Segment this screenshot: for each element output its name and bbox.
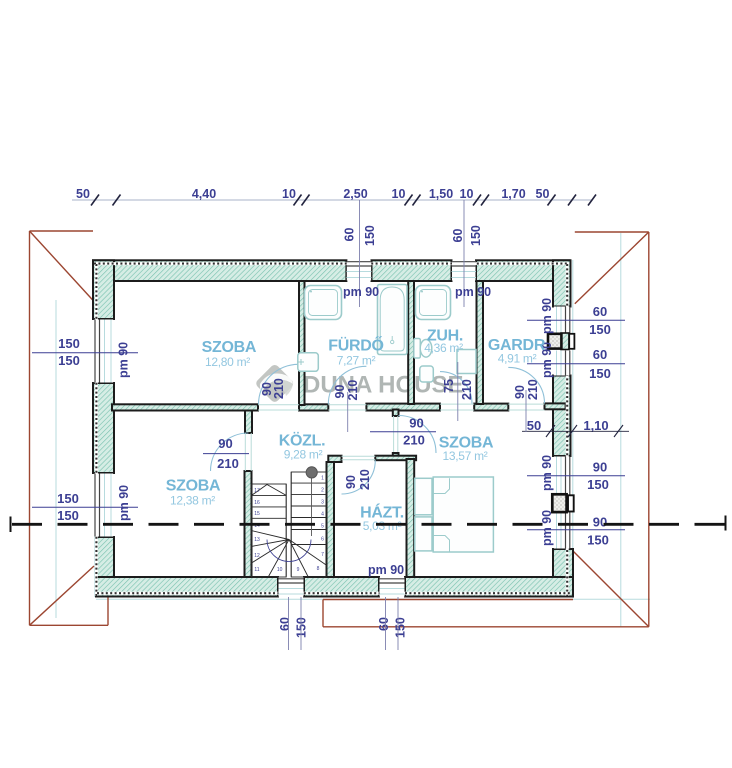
svg-text:150: 150 — [469, 225, 483, 246]
svg-text:pm 90: pm 90 — [540, 455, 554, 491]
svg-text:210: 210 — [358, 469, 372, 490]
svg-text:4,40: 4,40 — [192, 187, 216, 201]
svg-text:9,28 m²: 9,28 m² — [284, 448, 323, 462]
svg-text:SZOBA: SZOBA — [202, 339, 257, 356]
svg-text:150: 150 — [587, 477, 609, 492]
svg-text:10: 10 — [282, 187, 296, 201]
svg-text:210: 210 — [403, 433, 425, 448]
svg-text:1,70: 1,70 — [501, 187, 525, 201]
svg-text:1,10: 1,10 — [583, 418, 608, 433]
svg-text:SZOBA: SZOBA — [166, 478, 221, 495]
svg-text:10: 10 — [277, 567, 283, 573]
svg-text:12,80 m²: 12,80 m² — [205, 355, 250, 369]
svg-text:15: 15 — [254, 511, 260, 517]
svg-text:10: 10 — [392, 187, 406, 201]
svg-text:16: 16 — [254, 500, 260, 506]
svg-text:150: 150 — [58, 336, 80, 351]
svg-text:90: 90 — [344, 475, 358, 489]
svg-text:1,50: 1,50 — [429, 187, 453, 201]
svg-text:60: 60 — [451, 229, 465, 243]
svg-text:60: 60 — [593, 347, 607, 362]
svg-text:7,27 m²: 7,27 m² — [337, 354, 376, 368]
svg-text:150: 150 — [58, 353, 80, 368]
svg-text:60: 60 — [343, 228, 357, 242]
svg-text:150: 150 — [57, 508, 79, 523]
svg-text:60: 60 — [593, 304, 607, 319]
svg-text:150: 150 — [394, 617, 408, 638]
svg-text:pm 90: pm 90 — [117, 342, 131, 378]
svg-text:50: 50 — [76, 187, 90, 201]
svg-text:150: 150 — [589, 366, 611, 381]
svg-text:150: 150 — [587, 533, 609, 548]
svg-text:90: 90 — [593, 460, 607, 475]
svg-text:6: 6 — [321, 537, 324, 543]
svg-text:150: 150 — [589, 322, 611, 337]
svg-text:2,50: 2,50 — [343, 187, 367, 201]
svg-text:1: 1 — [321, 476, 324, 482]
svg-text:3: 3 — [321, 500, 324, 506]
svg-text:50: 50 — [527, 418, 541, 433]
svg-text:9: 9 — [297, 567, 300, 573]
svg-text:50: 50 — [536, 187, 550, 201]
svg-text:pm 90: pm 90 — [368, 563, 404, 577]
svg-text:90: 90 — [218, 436, 232, 451]
svg-text:pm 90: pm 90 — [117, 485, 131, 521]
svg-text:13: 13 — [254, 537, 260, 543]
svg-text:5: 5 — [321, 524, 324, 530]
svg-text:60: 60 — [377, 617, 391, 631]
svg-text:4,91 m²: 4,91 m² — [498, 352, 537, 366]
svg-text:90: 90 — [593, 515, 607, 530]
svg-text:5,03 m²: 5,03 m² — [363, 519, 402, 533]
svg-text:FÜRDŐ: FÜRDŐ — [328, 336, 383, 355]
svg-text:pm 90: pm 90 — [343, 285, 379, 299]
svg-text:pm 90: pm 90 — [455, 285, 491, 299]
svg-text:75: 75 — [442, 379, 456, 393]
svg-text:17: 17 — [254, 488, 260, 494]
svg-text:12: 12 — [254, 553, 260, 559]
svg-text:90: 90 — [333, 385, 347, 399]
svg-text:210: 210 — [217, 456, 239, 471]
svg-text:150: 150 — [57, 491, 79, 506]
svg-text:150: 150 — [363, 225, 377, 246]
svg-text:11: 11 — [254, 567, 259, 573]
svg-text:4: 4 — [321, 512, 324, 518]
svg-text:90: 90 — [513, 385, 527, 399]
svg-text:pm 90: pm 90 — [540, 298, 554, 334]
svg-text:2: 2 — [321, 488, 324, 494]
svg-text:210: 210 — [460, 379, 474, 400]
svg-text:12,38 m²: 12,38 m² — [170, 494, 215, 508]
svg-text:60: 60 — [278, 617, 292, 631]
svg-text:7: 7 — [321, 552, 324, 558]
svg-text:90: 90 — [409, 416, 423, 431]
svg-text:4,36 m²: 4,36 m² — [424, 341, 463, 355]
svg-text:150: 150 — [295, 617, 309, 638]
svg-text:210: 210 — [526, 379, 540, 400]
svg-text:8: 8 — [317, 566, 320, 572]
svg-text:DUNA HOUSE: DUNA HOUSE — [303, 372, 463, 399]
svg-text:10: 10 — [460, 187, 474, 201]
svg-text:210: 210 — [272, 378, 286, 399]
svg-text:pm 90: pm 90 — [540, 510, 554, 546]
svg-text:13,57 m²: 13,57 m² — [443, 449, 488, 463]
